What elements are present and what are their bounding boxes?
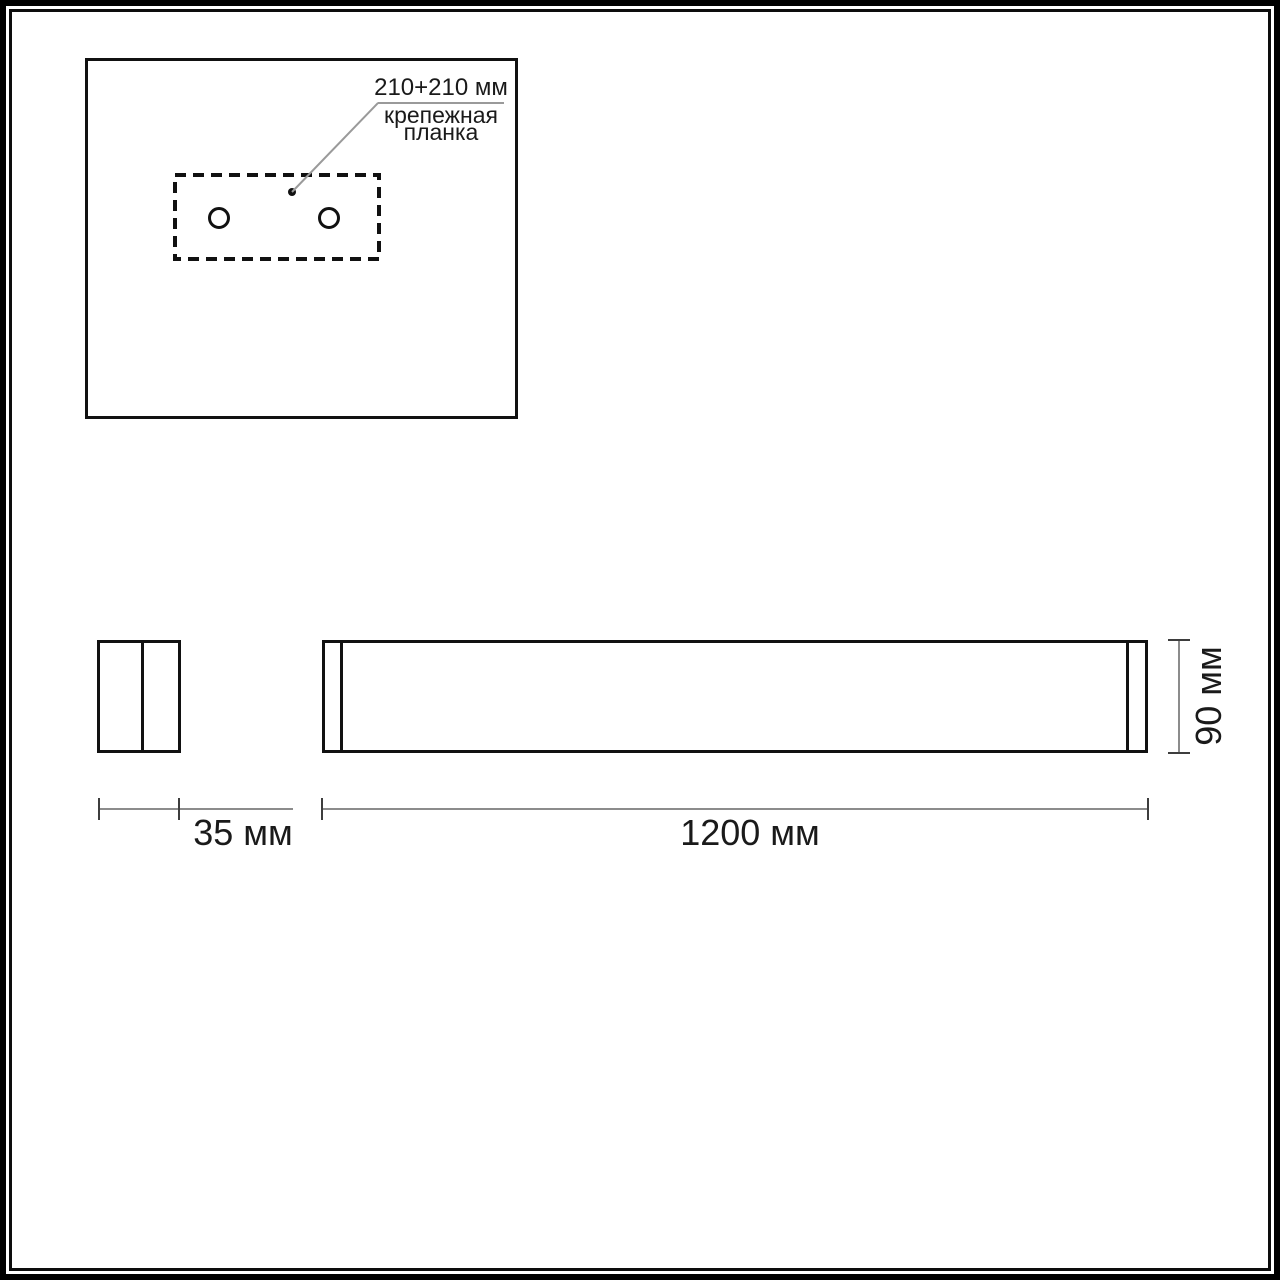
depth-dimension-tick-left — [98, 798, 100, 820]
length-dimension-label: 1200 мм — [635, 814, 865, 852]
mounting-bracket-label: крепежная планка — [378, 107, 504, 141]
front-view-left-endcap-line — [340, 643, 343, 750]
height-dimension-tick-top — [1168, 639, 1190, 641]
height-dimension-line — [1178, 640, 1180, 753]
front-view-right-endcap-line — [1126, 643, 1129, 750]
length-dimension-tick-left — [321, 798, 323, 820]
side-view-divider-line — [141, 640, 144, 753]
side-view-outline — [97, 640, 181, 753]
screw-hole-right-icon — [318, 207, 340, 229]
screw-hole-left-icon — [208, 207, 230, 229]
length-dimension-line — [322, 808, 1148, 810]
length-dimension-tick-right — [1147, 798, 1149, 820]
height-dimension-tick-bottom — [1168, 752, 1190, 754]
mounting-bracket-dashed-outline — [173, 173, 381, 261]
technical-drawing-sheet: 210+210 мм крепежная планка 35 мм 1200 м… — [0, 0, 1280, 1280]
depth-dimension-line — [99, 808, 293, 810]
depth-dimension-label: 35 мм — [160, 814, 326, 852]
front-view-outline — [322, 640, 1148, 753]
height-dimension-label: 90 мм — [1189, 636, 1229, 756]
mount-spacing-label: 210+210 мм — [358, 76, 524, 100]
